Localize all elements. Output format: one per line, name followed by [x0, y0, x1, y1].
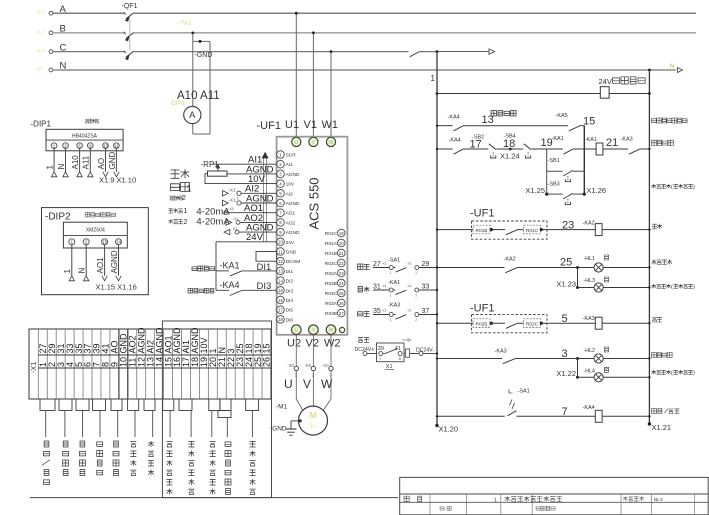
svg-text:16: 16 [278, 298, 283, 303]
svg-text:25: 25 [560, 256, 572, 268]
svg-text:-HL2: -HL2 [584, 348, 596, 354]
svg-text:-KA3: -KA3 [583, 316, 595, 322]
svg-text:A10: A10 [71, 155, 80, 170]
svg-text:31: 31 [373, 284, 381, 291]
svg-text:-SB2: -SB2 [472, 134, 484, 140]
svg-text:): ) [693, 285, 695, 291]
svg-text:-x1: -x1 [407, 309, 412, 313]
svg-text:-GND: -GND [195, 52, 213, 59]
svg-text:X1.20: X1.20 [439, 424, 459, 433]
svg-text:12: 12 [278, 259, 283, 264]
svg-text:23: 23 [562, 219, 574, 231]
svg-text:R01C: R01C [526, 228, 539, 234]
svg-text:R01B: R01B [476, 228, 488, 234]
svg-text:1: 1 [390, 293, 392, 297]
svg-text:AO: AO [97, 158, 106, 170]
svg-text:U: U [284, 377, 293, 391]
svg-text:X1.22: X1.22 [556, 369, 576, 378]
svg-text:26: 26 [262, 357, 272, 367]
svg-text:14: 14 [116, 240, 121, 245]
svg-text:35: 35 [373, 308, 381, 315]
svg-text:-KA3: -KA3 [388, 303, 400, 309]
svg-text:-HL4: -HL4 [584, 368, 596, 374]
svg-text:-UF1: -UF1 [257, 120, 281, 132]
svg-text:R03B: R03B [325, 311, 337, 317]
svg-text:-KA5: -KA5 [556, 113, 568, 119]
svg-text:-KA1: -KA1 [388, 280, 400, 286]
svg-text:R02B: R02B [476, 322, 488, 328]
svg-text:27: 27 [339, 311, 344, 316]
svg-text:R01B: R01B [325, 251, 337, 257]
svg-text:-SB1: -SB1 [548, 158, 560, 164]
svg-text:-SA1: -SA1 [388, 258, 400, 264]
svg-text:W1: W1 [322, 119, 339, 131]
svg-text:-KA2: -KA2 [583, 221, 595, 227]
svg-text:X1.26: X1.26 [587, 186, 607, 195]
svg-text:29: 29 [422, 261, 430, 268]
svg-text:W: W [321, 377, 333, 391]
svg-text:18: 18 [503, 138, 515, 150]
svg-text:22: 22 [339, 261, 344, 266]
svg-text:2: 2 [184, 219, 188, 226]
svg-text:7: 7 [562, 406, 568, 418]
svg-text:33: 33 [422, 284, 430, 291]
svg-text:DI4: DI4 [286, 298, 294, 304]
svg-text:V: V [312, 140, 316, 146]
svg-text:N: N [78, 268, 87, 274]
svg-text:-GND: -GND [270, 426, 287, 433]
svg-text:-QF1: -QF1 [122, 3, 138, 10]
svg-text:1: 1 [431, 74, 436, 83]
svg-text:-KA4: -KA4 [583, 405, 595, 411]
svg-text:W: W [329, 140, 334, 146]
svg-text:X1.25: X1.25 [525, 186, 545, 195]
svg-text:3: 3 [562, 348, 568, 360]
svg-text:XMZ604: XMZ604 [86, 228, 105, 234]
svg-text:2: 2 [182, 193, 186, 202]
svg-text:U: U [294, 328, 298, 334]
svg-text:25: 25 [339, 291, 344, 296]
svg-text:15: 15 [102, 240, 107, 245]
svg-text:18: 18 [278, 317, 283, 322]
svg-text:1: 1 [237, 196, 239, 200]
svg-text:-SA1: -SA1 [518, 388, 530, 394]
svg-text:AGND: AGND [286, 201, 300, 207]
svg-text:23: 23 [339, 271, 344, 276]
svg-text:A11: A11 [82, 155, 91, 169]
svg-text:-M1: -M1 [276, 404, 288, 411]
svg-text:4-20mA: 4-20mA [196, 216, 230, 227]
svg-text:AGND: AGND [286, 172, 300, 178]
svg-text:DI1: DI1 [286, 269, 294, 275]
svg-text:1: 1 [46, 165, 55, 170]
svg-text:AGND: AGND [286, 230, 300, 236]
svg-text:V: V [303, 377, 311, 391]
svg-text:2: 2 [415, 293, 417, 297]
svg-text:11: 11 [278, 249, 283, 254]
svg-text:1L3: 1L3 [37, 48, 45, 54]
svg-text:-x1: -x1 [382, 262, 387, 266]
svg-text:): ) [693, 371, 695, 377]
svg-text:24V: 24V [599, 77, 612, 86]
svg-text:1: 1 [63, 269, 72, 274]
svg-text:39: 39 [378, 346, 384, 352]
svg-text:-KA4: -KA4 [448, 115, 460, 121]
svg-text:V1: V1 [304, 119, 317, 131]
svg-text:-KA1: -KA1 [552, 136, 564, 142]
svg-text:3~: 3~ [309, 423, 317, 430]
svg-text:(: ( [671, 285, 673, 291]
svg-text:-KA4: -KA4 [449, 138, 461, 144]
svg-text:27: 27 [373, 261, 381, 268]
svg-text:-X0: -X0 [287, 363, 294, 368]
svg-text:V: V [312, 328, 316, 334]
svg-text:DI2: DI2 [286, 279, 294, 285]
svg-text:X1.23: X1.23 [556, 279, 576, 288]
svg-text:A: A [189, 110, 195, 120]
svg-text:-X1: -X1 [29, 362, 38, 374]
svg-text:U2: U2 [287, 338, 301, 350]
svg-text:-UF1: -UF1 [470, 303, 494, 315]
svg-text:-KA4: -KA4 [220, 280, 240, 290]
svg-text:37: 37 [422, 308, 430, 315]
svg-text:15: 15 [278, 288, 283, 293]
svg-text:-X0: -X0 [322, 363, 329, 368]
svg-text:-X1: -X1 [228, 188, 236, 194]
svg-text:AO2: AO2 [286, 220, 296, 226]
svg-text:№ 2: № 2 [654, 497, 663, 503]
svg-text:24: 24 [339, 281, 344, 286]
svg-text:1: 1 [390, 271, 392, 275]
svg-text:-TA1: -TA1 [179, 21, 192, 27]
svg-text:20: 20 [339, 241, 344, 246]
svg-text:14: 14 [278, 278, 283, 283]
svg-text:-KA1: -KA1 [220, 261, 240, 271]
svg-text:-x1: -x1 [382, 309, 387, 313]
svg-text:1: 1 [187, 183, 192, 193]
svg-text:21: 21 [606, 137, 618, 149]
svg-text:R03A: R03A [325, 301, 338, 307]
svg-text:15: 15 [262, 343, 272, 353]
svg-text:13: 13 [103, 143, 108, 148]
svg-text:GND: GND [108, 152, 117, 170]
svg-text:M: M [309, 410, 316, 420]
svg-text:5: 5 [562, 313, 568, 325]
svg-text:DI5: DI5 [286, 308, 294, 314]
svg-text:24V: 24V [246, 232, 264, 243]
svg-text:DCOM: DCOM [286, 259, 301, 265]
svg-text:2: 2 [415, 318, 417, 322]
svg-text:-X0: -X0 [304, 363, 311, 368]
svg-text:AI1: AI1 [286, 162, 294, 168]
svg-text:HB404ZSA: HB404ZSA [72, 133, 98, 139]
svg-text:U: U [294, 140, 298, 146]
svg-text:R02A: R02A [325, 271, 338, 277]
svg-text:-HL1: -HL1 [584, 256, 596, 262]
svg-text:(: ( [671, 185, 673, 191]
svg-text:-KA1: -KA1 [585, 137, 597, 143]
svg-text:X1.9 X1.10: X1.9 X1.10 [99, 176, 136, 185]
svg-text:-x1: -x1 [407, 284, 412, 288]
svg-text:10: 10 [278, 240, 283, 245]
svg-text:U1: U1 [285, 119, 299, 131]
svg-text:21: 21 [339, 251, 344, 256]
svg-text:1L2: 1L2 [37, 29, 45, 35]
svg-text:SCR: SCR [286, 153, 297, 159]
svg-text:-HL3: -HL3 [584, 278, 596, 284]
svg-text:1: 1 [494, 497, 497, 503]
svg-text:-x1: -x1 [382, 284, 387, 288]
svg-text:AI2: AI2 [286, 191, 294, 197]
svg-text:1: 1 [184, 208, 188, 215]
svg-text:10V: 10V [286, 182, 295, 188]
svg-text:DI1: DI1 [257, 262, 272, 273]
svg-text:-DIP1: -DIP1 [170, 101, 186, 107]
svg-text:11: 11 [114, 143, 119, 148]
svg-text:DI3: DI3 [257, 281, 272, 292]
svg-text:-KA3: -KA3 [621, 137, 633, 143]
svg-text:R01A: R01A [325, 241, 338, 247]
svg-text:1N: 1N [37, 67, 44, 73]
svg-text:DI6: DI6 [286, 317, 294, 323]
svg-text:): ) [693, 185, 695, 191]
svg-text:1L1: 1L1 [37, 10, 45, 16]
svg-text:-DIP1: -DIP1 [31, 120, 52, 129]
svg-text:R01C: R01C [325, 231, 338, 237]
svg-text:V2: V2 [306, 338, 319, 350]
svg-text:-DIP2: -DIP2 [45, 212, 71, 223]
svg-text:R02C: R02C [526, 322, 539, 328]
svg-text:ACS 550: ACS 550 [307, 177, 322, 229]
svg-text:X1.15 X1.16: X1.15 X1.16 [96, 283, 137, 292]
svg-text:AO1: AO1 [96, 257, 105, 274]
svg-text:R03C: R03C [325, 291, 338, 297]
svg-text:N: N [670, 64, 674, 70]
svg-text:19: 19 [339, 231, 344, 236]
svg-text:AGND: AGND [110, 250, 119, 273]
svg-text:GND: GND [286, 250, 297, 256]
svg-text:1: 1 [390, 318, 392, 322]
svg-text:-UF1: -UF1 [470, 208, 494, 220]
svg-text:-KA3: -KA3 [495, 349, 507, 355]
svg-text:AO1: AO1 [286, 211, 296, 217]
svg-text:-KA2: -KA2 [504, 257, 516, 263]
svg-text:W: W [329, 328, 334, 334]
svg-text:W2: W2 [324, 338, 341, 350]
svg-text:2: 2 [415, 271, 417, 275]
svg-text:R02B: R02B [325, 281, 337, 287]
svg-text:13: 13 [278, 269, 283, 274]
svg-text:X1.24: X1.24 [500, 152, 520, 161]
svg-text:X1.21: X1.21 [652, 423, 672, 432]
svg-text:-SB4: -SB4 [504, 133, 516, 139]
svg-text:N: N [57, 164, 66, 170]
svg-text:15: 15 [583, 115, 595, 127]
svg-text:-x1: -x1 [407, 262, 412, 266]
svg-text:17: 17 [278, 308, 283, 313]
svg-text:R02C: R02C [325, 261, 338, 267]
svg-text:DI3: DI3 [286, 288, 294, 294]
svg-text:(: ( [671, 371, 673, 377]
svg-text:-SB3: -SB3 [548, 181, 560, 187]
svg-text:24V: 24V [286, 240, 295, 246]
svg-text:-X1: -X1 [228, 197, 236, 203]
svg-text:26: 26 [339, 301, 344, 306]
svg-text:DC24V-: DC24V- [416, 347, 434, 353]
